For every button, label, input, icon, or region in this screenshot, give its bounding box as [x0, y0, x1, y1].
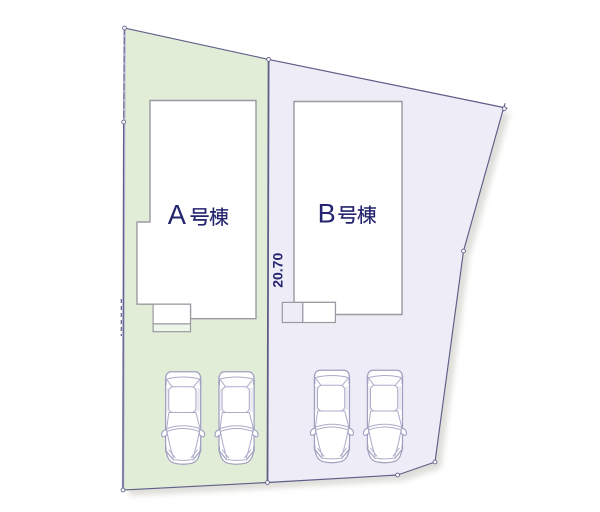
svg-text:20.70: 20.70	[269, 253, 285, 288]
svg-text:A: A	[168, 199, 187, 230]
svg-text:B: B	[318, 198, 336, 229]
